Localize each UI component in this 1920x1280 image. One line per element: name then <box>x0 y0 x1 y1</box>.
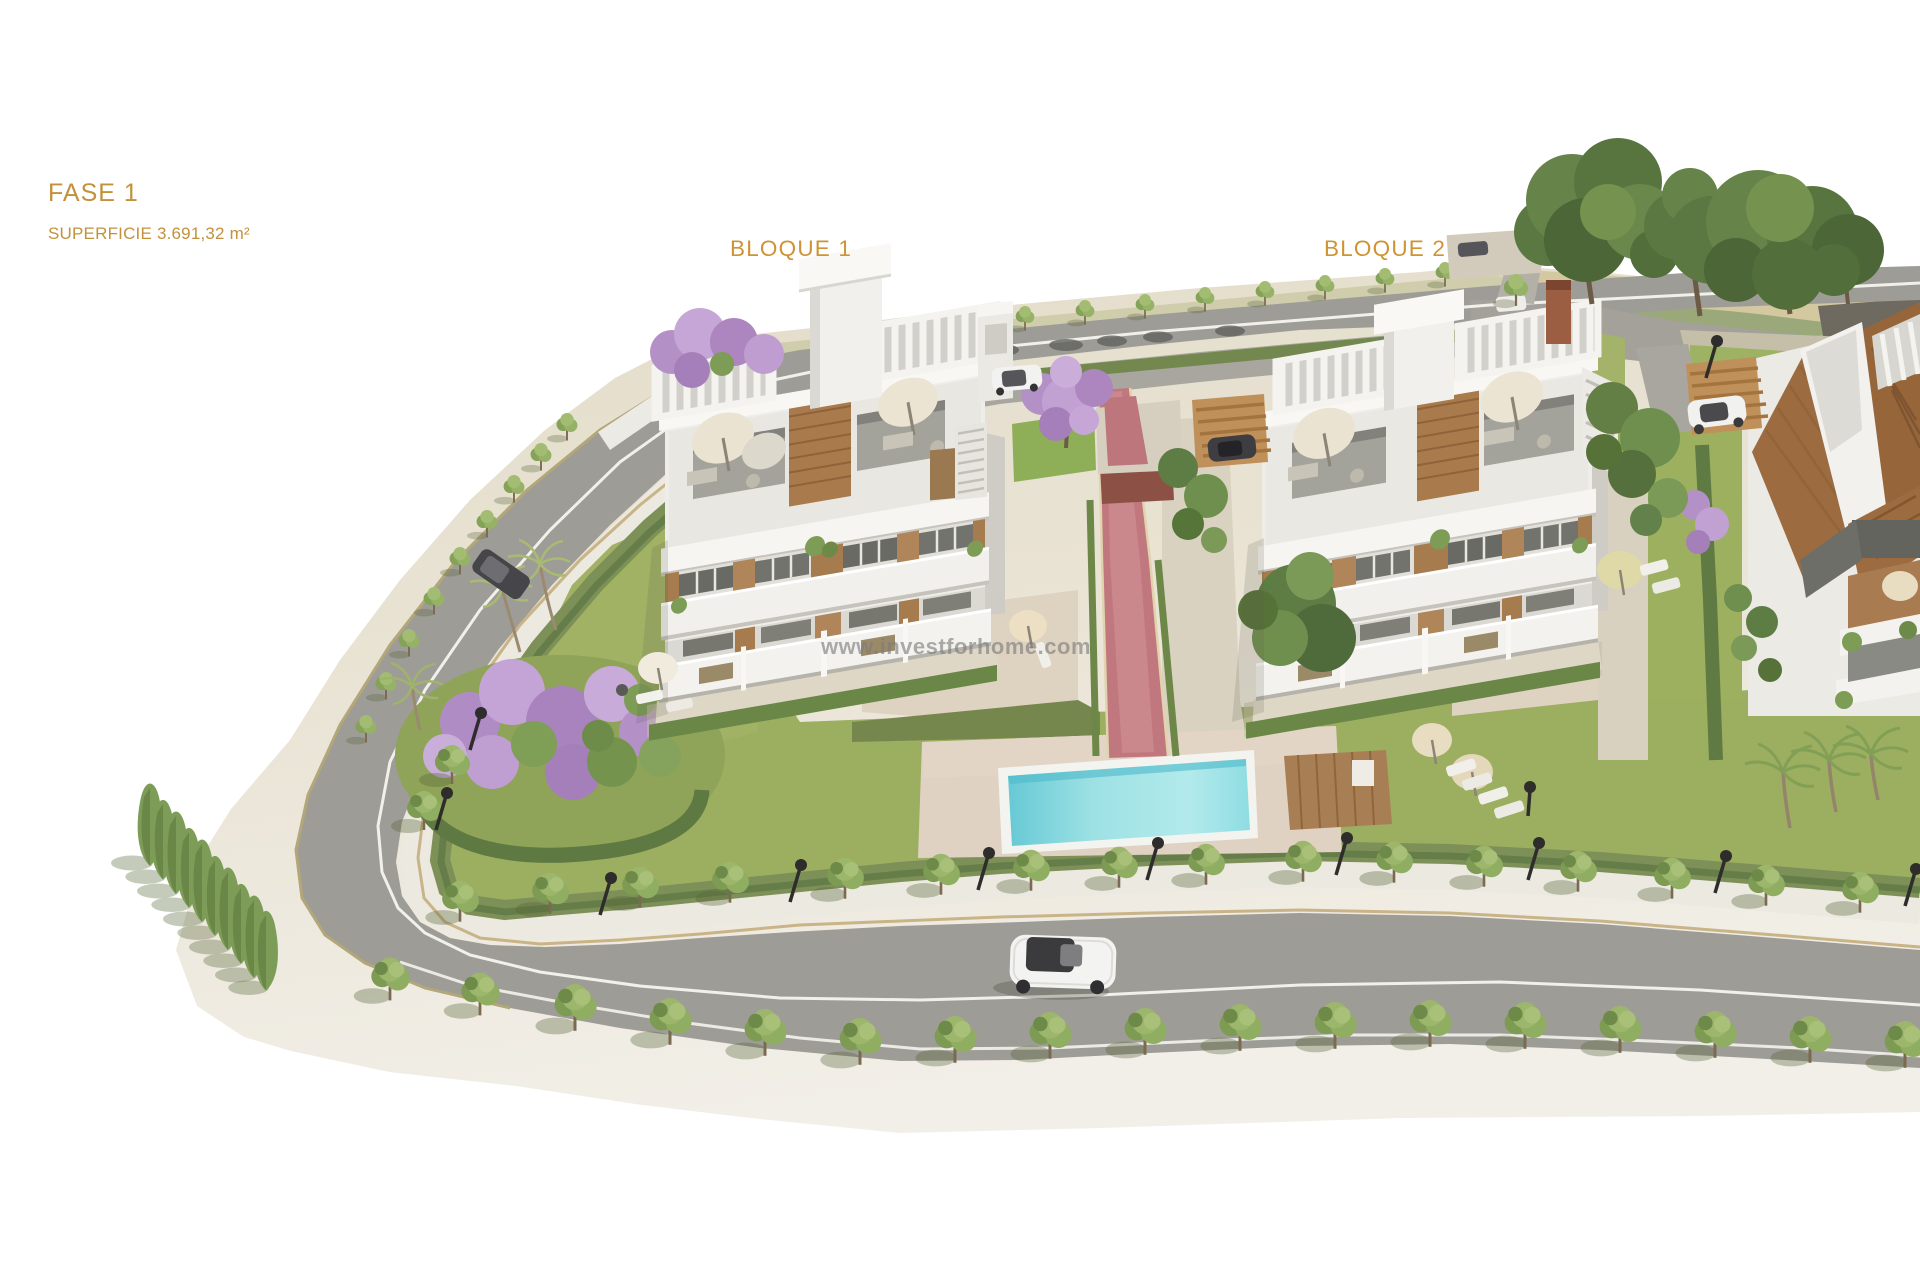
svg-text:FASE 1: FASE 1 <box>48 179 139 207</box>
svg-text:SUPERFICIE 3.691,32 m²: SUPERFICIE 3.691,32 m² <box>48 224 250 243</box>
svg-text:BLOQUE 1: BLOQUE 1 <box>730 236 852 261</box>
svg-text:BLOQUE 2: BLOQUE 2 <box>1324 236 1446 261</box>
svg-text:www.investforhome.com: www.investforhome.com <box>820 634 1091 659</box>
